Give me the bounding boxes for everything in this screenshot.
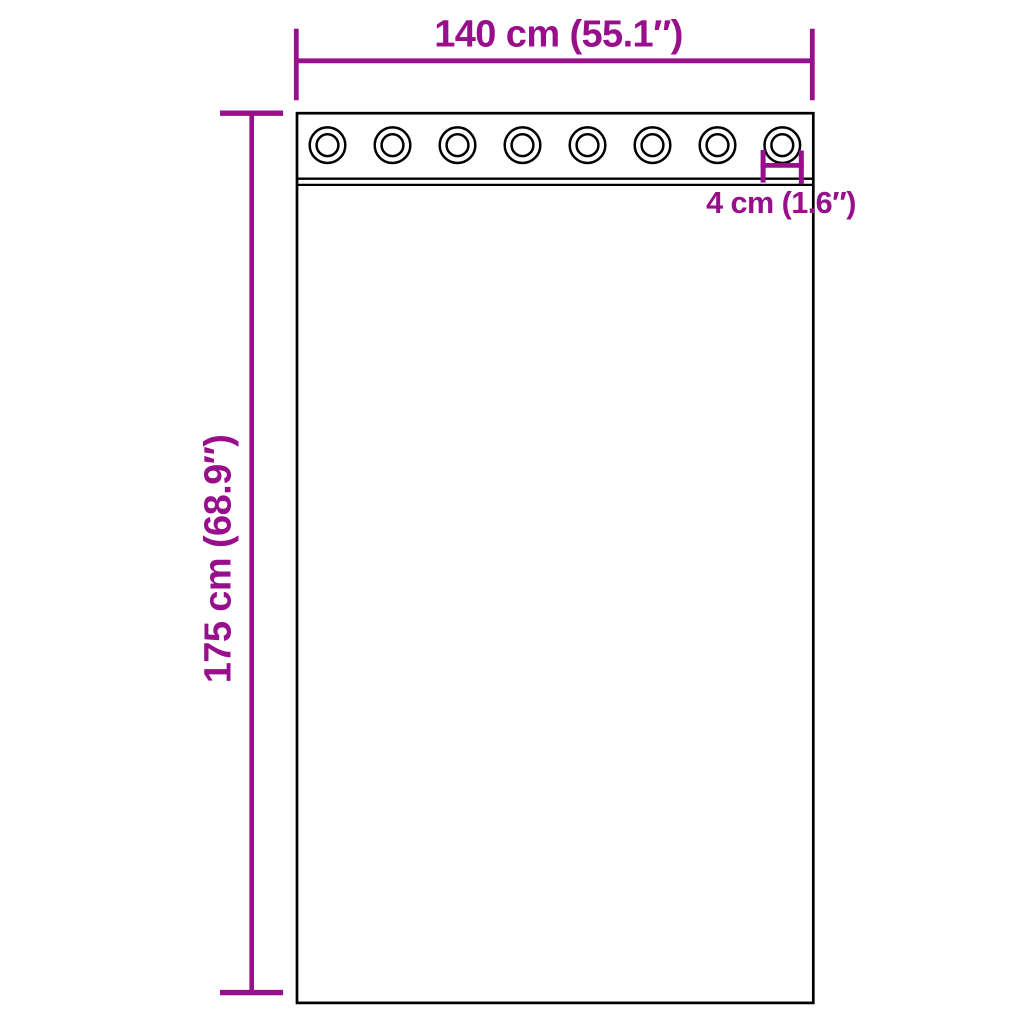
svg-text:4 cm (1.6″): 4 cm (1.6″) <box>706 186 856 220</box>
svg-text:140 cm (55.1″): 140 cm (55.1″) <box>434 14 683 56</box>
svg-text:175 cm (68.9″): 175 cm (68.9″) <box>198 435 240 684</box>
